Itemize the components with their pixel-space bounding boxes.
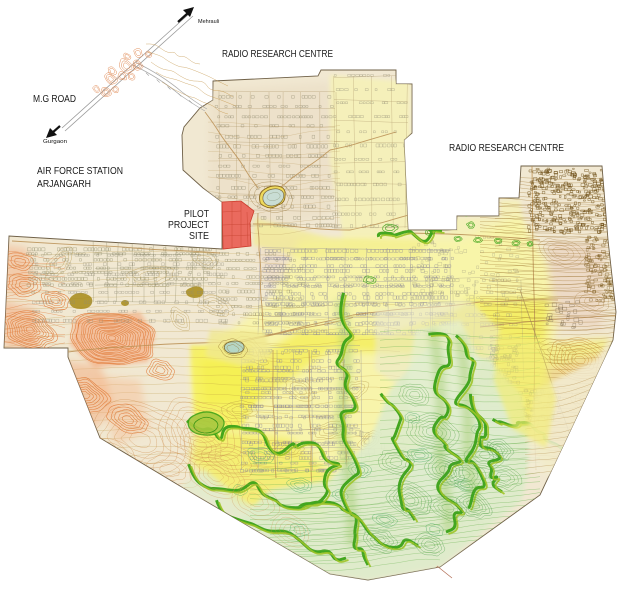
svg-text:PILOT: PILOT bbox=[184, 209, 209, 220]
svg-text:PROJECT: PROJECT bbox=[168, 220, 209, 231]
svg-text:RADIO RESEARCH CENTRE: RADIO RESEARCH CENTRE bbox=[449, 143, 564, 154]
svg-text:RADIO RESEARCH CENTRE: RADIO RESEARCH CENTRE bbox=[222, 49, 333, 60]
svg-text:Mehrauli: Mehrauli bbox=[198, 19, 219, 25]
svg-text:M.G ROAD: M.G ROAD bbox=[33, 94, 76, 105]
svg-text:SITE: SITE bbox=[189, 231, 209, 242]
svg-text:Gurgaon: Gurgaon bbox=[43, 139, 67, 145]
svg-text:ARJANGARH: ARJANGARH bbox=[37, 179, 91, 190]
svg-text:AIR FORCE STATION: AIR FORCE STATION bbox=[37, 166, 123, 177]
